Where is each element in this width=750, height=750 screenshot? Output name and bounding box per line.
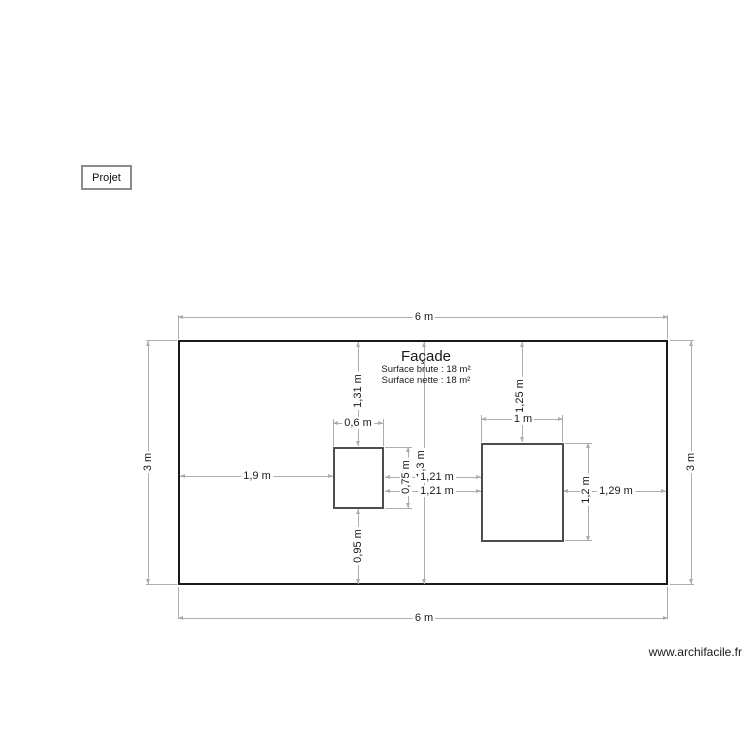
extension-line [146,340,177,341]
dim-label-win1-width: 0,6 m [342,417,374,429]
extension-line [670,584,694,585]
dim-label-win2-height: 1,2 m [580,474,592,506]
dim-label-gap-upper: 1,21 m [418,471,456,483]
dim-label-win1-offset-left: 1,9 m [241,470,273,482]
window-small [333,447,384,509]
surface-brute-text: Surface brute : 18 m² [381,365,470,376]
dim-label-win2-offset-right: 1,29 m [597,485,635,497]
dim-label-win1-offset-bottom: 0,95 m [352,527,364,565]
project-tab-label: Projet [92,172,121,184]
dim-label-width-top: 6 m [413,311,435,323]
title-block: Façade Surface brute : 18 m² Surface net… [381,349,470,386]
dim-label-win1-height: 0,75 m [400,458,412,496]
extension-line [383,419,384,446]
extension-line [178,587,179,618]
dim-label-win2-offset-top: 1,25 m [514,377,526,415]
extension-line [385,508,412,509]
surface-nette-text: Surface nette : 18 m² [381,376,470,387]
dim-label-win1-offset-top: 1,31 m [352,372,364,410]
dim-label-height-right: 3 m [685,451,697,473]
print-page: Projet [0,0,750,750]
window-large [481,443,564,542]
project-tab[interactable]: Projet [81,165,132,190]
dim-label-gap-lower: 1,21 m [418,485,456,497]
extension-line [146,584,177,585]
dim-label-height-left: 3 m [142,451,154,473]
watermark: www.archifacile.fr [649,645,742,659]
extension-line [667,587,668,618]
drawing-title: Façade [381,349,470,365]
dim-label-width-bottom: 6 m [413,612,435,624]
